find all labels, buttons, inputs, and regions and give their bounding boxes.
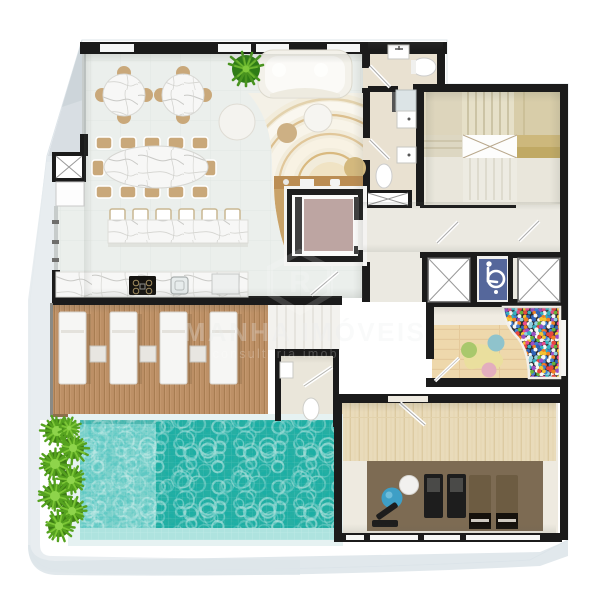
svg-text:consultoria imobiliária: consultoria imobiliária — [213, 347, 384, 361]
svg-text:MANHA IMÓVEIS: MANHA IMÓVEIS — [184, 317, 427, 347]
svg-text:R: R — [289, 266, 311, 299]
